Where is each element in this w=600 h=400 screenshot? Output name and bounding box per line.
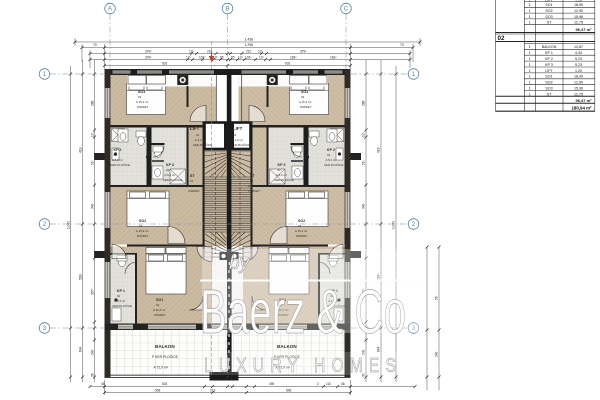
svg-text:12²: 12² — [186, 55, 191, 59]
svg-text:56: 56 — [435, 296, 439, 300]
svg-text:LIFT: LIFT — [233, 126, 243, 131]
svg-text:BALKON: BALKON — [155, 344, 175, 349]
svg-text:by: by — [229, 253, 251, 274]
svg-text:02: 02 — [117, 294, 121, 298]
svg-text:PARKET: PARKET — [154, 313, 166, 317]
svg-text:LIFT: LIFT — [190, 126, 200, 131]
svg-text:12,75: 12,75 — [574, 21, 583, 25]
svg-text:36: 36 — [91, 373, 95, 377]
svg-text:SO3: SO3 — [301, 90, 308, 94]
svg-text:KP 3: KP 3 — [166, 163, 174, 167]
svg-text:2: 2 — [412, 221, 416, 228]
svg-text:PARKET: PARKET — [296, 234, 308, 238]
svg-text:490: 490 — [269, 382, 275, 386]
svg-text:1: 1 — [529, 63, 531, 67]
svg-text:240: 240 — [435, 351, 439, 357]
svg-text:180,94 m²: 180,94 m² — [571, 106, 592, 111]
svg-text:163²: 163² — [330, 55, 336, 59]
svg-text:95: 95 — [231, 55, 235, 59]
svg-text:379²: 379² — [145, 55, 151, 59]
svg-text:02: 02 — [298, 224, 302, 228]
svg-text:BALKON: BALKON — [542, 45, 557, 49]
svg-text:288: 288 — [362, 100, 366, 106]
svg-text:A 4,3 m²: A 4,3 m² — [115, 299, 126, 303]
svg-text:12²: 12² — [362, 132, 366, 137]
svg-text:1: 1 — [529, 75, 531, 79]
svg-text:96,47 m²: 96,47 m² — [575, 27, 592, 32]
svg-text:506: 506 — [286, 388, 292, 392]
svg-text:B: B — [225, 6, 229, 13]
svg-text:15,96: 15,96 — [574, 15, 583, 19]
svg-text:602: 602 — [162, 61, 168, 65]
svg-text:379²: 379² — [300, 49, 306, 53]
svg-text:SO1: SO1 — [156, 298, 163, 302]
svg-text:4,34: 4,34 — [575, 51, 582, 55]
svg-text:A 16,3 m²: A 16,3 m² — [153, 308, 165, 312]
svg-text:1: 1 — [529, 57, 531, 61]
svg-text:PARKET: PARKET — [300, 105, 312, 109]
svg-text:411²: 411² — [79, 147, 83, 153]
svg-text:3: 3 — [43, 325, 47, 332]
svg-text:1,20: 1,20 — [575, 0, 582, 2]
svg-text:1: 1 — [529, 9, 531, 13]
svg-text:PARKET: PARKET — [137, 234, 149, 238]
svg-text:1: 1 — [529, 45, 531, 49]
svg-text:02: 02 — [138, 95, 142, 99]
svg-text:A 1,2 m²: A 1,2 m² — [232, 138, 243, 142]
svg-text:12,90: 12,90 — [574, 81, 583, 85]
svg-text:506: 506 — [155, 388, 161, 392]
svg-text:A 1,2 m²: A 1,2 m² — [195, 138, 206, 142]
svg-text:102²: 102² — [199, 55, 205, 59]
svg-text:12²: 12² — [91, 132, 95, 137]
svg-text:02: 02 — [278, 168, 282, 172]
svg-text:13,87: 13,87 — [574, 45, 583, 49]
svg-text:307²: 307² — [91, 289, 95, 295]
svg-text:KER.PLOČICE: KER.PLOČICE — [275, 177, 295, 182]
svg-text:1.296: 1.296 — [245, 43, 254, 47]
svg-text:51²: 51² — [91, 160, 95, 165]
svg-text:KP 3: KP 3 — [545, 63, 553, 67]
svg-text:SO3: SO3 — [138, 90, 145, 94]
svg-text:ST: ST — [190, 174, 195, 178]
svg-text:01: 01 — [196, 133, 200, 137]
svg-text:LIFT: LIFT — [545, 69, 553, 73]
svg-text:340: 340 — [362, 203, 366, 209]
svg-text:1: 1 — [412, 71, 416, 78]
svg-text:KER.PLOČICE: KER.PLOČICE — [163, 177, 183, 182]
svg-text:KER.PLOČICE: KER.PLOČICE — [231, 142, 251, 147]
svg-text:A 72,9 m²: A 72,9 m² — [154, 366, 169, 370]
svg-text:SO2: SO2 — [545, 9, 552, 13]
svg-text:1,20: 1,20 — [575, 69, 582, 73]
svg-text:1: 1 — [529, 21, 531, 25]
svg-text:KER.PLOČICE: KER.PLOČICE — [113, 303, 133, 308]
svg-text:602: 602 — [285, 61, 291, 65]
svg-text:02: 02 — [114, 153, 118, 157]
svg-text:18,99: 18,99 — [574, 3, 583, 7]
svg-text:12,90: 12,90 — [574, 9, 583, 13]
svg-text:213: 213 — [210, 388, 216, 392]
svg-text:110: 110 — [326, 382, 331, 386]
svg-text:70: 70 — [400, 43, 404, 47]
svg-text:1.436: 1.436 — [245, 38, 254, 42]
svg-text:SO2: SO2 — [545, 81, 552, 85]
svg-text:A 5,2 m²: A 5,2 m² — [326, 158, 337, 162]
svg-text:1: 1 — [529, 51, 531, 55]
svg-text:02: 02 — [301, 95, 305, 99]
svg-text:1: 1 — [529, 87, 531, 91]
svg-text:KP 1: KP 1 — [117, 289, 125, 293]
svg-text:C: C — [344, 6, 349, 13]
svg-text:288: 288 — [91, 100, 95, 106]
svg-text:2: 2 — [317, 382, 319, 386]
svg-text:411²: 411² — [377, 147, 381, 153]
svg-text:1.042: 1.042 — [67, 221, 71, 229]
svg-text:A 15,3 m²: A 15,3 m² — [136, 229, 148, 233]
svg-text:KP 2: KP 2 — [545, 57, 553, 61]
svg-text:02: 02 — [250, 179, 254, 183]
svg-text:KP 1: KP 1 — [545, 51, 553, 55]
svg-text:18,99: 18,99 — [574, 75, 583, 79]
svg-text:12,75: 12,75 — [574, 92, 583, 96]
svg-text:340: 340 — [91, 203, 95, 209]
svg-text:15,96: 15,96 — [574, 87, 583, 91]
svg-text:SO1: SO1 — [545, 75, 552, 79]
svg-text:02: 02 — [327, 153, 331, 157]
svg-text:A 5,2 m²: A 5,2 m² — [112, 158, 123, 162]
svg-text:12²: 12² — [189, 49, 194, 53]
svg-text:240: 240 — [91, 349, 95, 355]
svg-text:02: 02 — [498, 35, 505, 42]
svg-text:A 15,3 m²: A 15,3 m² — [295, 229, 307, 233]
svg-text:1: 1 — [529, 3, 531, 7]
svg-text:602: 602 — [162, 382, 168, 386]
svg-text:A 3,7 m²: A 3,7 m² — [188, 184, 199, 188]
svg-text:5,23: 5,23 — [575, 63, 582, 67]
svg-text:A 5,2 m²: A 5,2 m² — [276, 173, 287, 177]
svg-text:183²: 183² — [290, 55, 296, 59]
svg-text:95: 95 — [220, 55, 224, 59]
svg-text:102²: 102² — [245, 55, 251, 59]
svg-text:96,47 m²: 96,47 m² — [575, 98, 592, 103]
svg-text:LIFT: LIFT — [545, 0, 553, 2]
svg-text:Baerz & Co: Baerz & Co — [200, 278, 406, 347]
svg-text:1: 1 — [529, 0, 531, 2]
svg-text:SO3: SO3 — [545, 15, 552, 19]
svg-text:A 15,3 m²: A 15,3 m² — [299, 100, 311, 104]
svg-text:70: 70 — [93, 43, 97, 47]
svg-text:2: 2 — [43, 221, 47, 228]
svg-text:PARKET: PARKET — [137, 105, 149, 109]
svg-text:ST: ST — [547, 92, 552, 96]
svg-text:SO2: SO2 — [298, 219, 305, 223]
svg-text:644: 644 — [79, 346, 83, 352]
svg-text:36: 36 — [101, 382, 105, 386]
svg-text:SO1: SO1 — [545, 3, 552, 7]
svg-text:A 3,7 m²: A 3,7 m² — [248, 184, 259, 188]
svg-text:644: 644 — [377, 346, 381, 352]
svg-text:KER.PLOČICE: KER.PLOČICE — [324, 162, 344, 167]
svg-text:P KER PLOČICE: P KER PLOČICE — [152, 354, 179, 359]
svg-text:12²: 12² — [238, 55, 243, 59]
svg-text:518²: 518² — [79, 274, 83, 280]
svg-text:KER.PLOČICE: KER.PLOČICE — [193, 142, 213, 147]
svg-text:1: 1 — [529, 15, 531, 19]
svg-text:12²: 12² — [258, 49, 263, 53]
svg-text:SO2: SO2 — [139, 219, 146, 223]
svg-text:A 15,3 m²: A 15,3 m² — [136, 100, 148, 104]
svg-text:36: 36 — [341, 382, 345, 386]
svg-text:1.042: 1.042 — [392, 221, 396, 229]
svg-text:210: 210 — [246, 49, 252, 53]
svg-text:PARKET: PARKET — [189, 189, 201, 193]
svg-text:LUXURY HOMES: LUXURY HOMES — [204, 355, 402, 377]
svg-text:01: 01 — [156, 303, 160, 307]
svg-text:1: 1 — [43, 71, 47, 78]
svg-text:KP 3: KP 3 — [278, 163, 286, 167]
svg-text:ST: ST — [547, 21, 552, 25]
svg-text:12²: 12² — [259, 55, 264, 59]
svg-text:379²: 379² — [145, 49, 151, 53]
svg-text:A 5,2 m²: A 5,2 m² — [165, 173, 176, 177]
svg-text:KP 2: KP 2 — [327, 148, 335, 152]
svg-text:1: 1 — [529, 81, 531, 85]
svg-text:01: 01 — [190, 179, 194, 183]
svg-text:02: 02 — [166, 168, 170, 172]
svg-text:51²: 51² — [362, 160, 366, 165]
svg-text:5,23: 5,23 — [575, 57, 582, 61]
svg-text:1: 1 — [529, 92, 531, 96]
svg-text:KP 2: KP 2 — [114, 148, 122, 152]
svg-text:SO3: SO3 — [545, 87, 552, 91]
svg-text:ST: ST — [250, 174, 255, 178]
svg-text:KER.PLOČICE: KER.PLOČICE — [111, 162, 131, 167]
svg-text:1: 1 — [529, 69, 531, 73]
svg-text:02: 02 — [233, 133, 237, 137]
svg-text:PARKET: PARKET — [249, 189, 261, 193]
svg-text:02: 02 — [139, 224, 143, 228]
